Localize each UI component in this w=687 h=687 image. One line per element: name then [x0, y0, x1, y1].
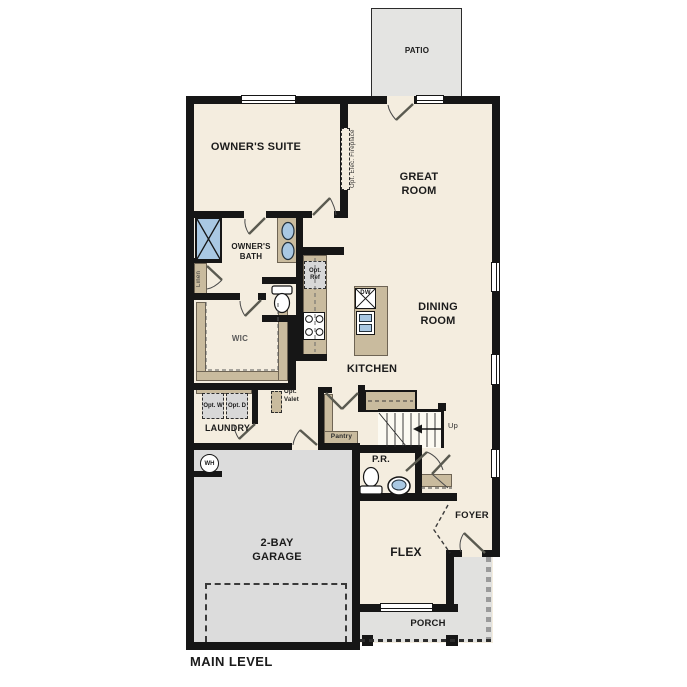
opt-washer: Opt. W — [202, 393, 224, 419]
room-label-garage: 2-BAY GARAGE — [240, 537, 314, 565]
wall-wic-right — [288, 322, 296, 390]
wall-flex-right — [446, 553, 454, 612]
wall-flex-top — [352, 493, 457, 501]
water-heater: WH — [200, 454, 219, 473]
wall-suite-bottom-3 — [334, 211, 348, 218]
window-flex — [380, 603, 433, 612]
wall-pantry-left — [318, 387, 324, 447]
wic-shelf-bottom — [196, 371, 288, 381]
wall-garage-bottom — [186, 642, 360, 650]
room-label-owners-suite: OWNER'S SUITE — [210, 141, 302, 155]
room-label-patio: PATIO — [391, 46, 443, 56]
bath-vanity — [277, 216, 298, 263]
wic-shelf-right — [278, 302, 288, 381]
wall-wic-top — [186, 293, 240, 300]
opt-dryer: Opt. D — [226, 393, 248, 419]
wall-kitchen-vertical — [296, 211, 303, 361]
window-great-room-top — [416, 95, 444, 104]
wall-garage-right — [352, 443, 360, 650]
opt-fireplace — [341, 128, 350, 190]
annotation-stairs-up: Up — [444, 421, 462, 430]
wall-laundry-top — [186, 383, 296, 390]
wall-counter-cap — [296, 354, 327, 361]
room-label-foyer: FOYER — [450, 510, 494, 522]
opt-refrigerator: Opt. Ref — [304, 261, 326, 289]
wall-wic-hinge-stub — [258, 293, 266, 300]
patio-door-opening — [387, 96, 414, 104]
island-sink-bowl-top — [359, 314, 372, 322]
water-heater-label: WH — [205, 461, 215, 467]
opt-washer-label: Opt. W — [203, 403, 222, 410]
stair-post — [438, 403, 446, 411]
wall-toilet-alcove-top — [262, 277, 303, 284]
porch-edge-right-dashed — [486, 557, 491, 643]
garage-door-dashed — [205, 583, 347, 642]
room-label-powder-room: P.R. — [366, 454, 396, 466]
wall-stairs-bottom — [352, 445, 422, 453]
stove — [303, 312, 325, 340]
porch-edge-bottom-dashed — [360, 639, 492, 642]
stairs-floor — [378, 412, 443, 448]
room-label-owners-bath: OWNER'S BATH — [222, 242, 280, 262]
annotation-fireplace: Opt. Elec. Fireplace — [350, 122, 356, 196]
room-label-porch: PORCH — [404, 618, 452, 630]
shower — [195, 217, 222, 261]
annotation-linen: Linen — [196, 265, 202, 293]
room-label-kitchen: KITCHEN — [342, 363, 402, 377]
annotation-opt-valet: Opt. Valet — [284, 389, 308, 404]
window-owners-suite — [241, 95, 296, 104]
dishwasher-label: DW — [355, 290, 376, 298]
room-label-great-room: GREAT ROOM — [392, 171, 446, 199]
floor-plan: Opt. Ref DW Opt. W Opt. D WH — [0, 0, 687, 687]
wall-foyer-bottom-right — [482, 550, 496, 557]
room-label-dining-room: DINING ROOM — [407, 301, 469, 329]
wall-exterior-left — [186, 96, 194, 650]
wall-garage-top-left — [186, 443, 292, 450]
wall-laundry-right — [252, 390, 258, 424]
window-great-room-right — [491, 262, 500, 292]
stair-rail-top — [378, 409, 443, 412]
room-label-pantry: Pantry — [326, 433, 357, 441]
wall-pantry-stub — [318, 387, 332, 393]
wic-shelf-left — [196, 302, 206, 381]
wall-landing-left — [358, 385, 365, 412]
wall-toilet-alcove-bottom — [262, 315, 303, 322]
window-dining-right — [491, 354, 500, 385]
plan-title: MAIN LEVEL — [190, 654, 320, 670]
island-sink-bowl-bottom — [359, 324, 372, 332]
wall-kitchen-horizontal — [296, 247, 344, 255]
valet-bench — [271, 391, 282, 413]
room-label-laundry: LAUNDRY — [200, 423, 255, 434]
window-foyer-right — [491, 449, 500, 478]
wall-exterior-right — [492, 96, 500, 557]
wall-suite-bottom-2 — [266, 211, 312, 218]
room-label-flex: FLEX — [383, 545, 429, 560]
opt-ref-label: Opt. Ref — [305, 268, 325, 281]
room-label-wic: WIC — [224, 334, 256, 344]
opt-dryer-label: Opt. D — [228, 403, 246, 410]
closet-shelf — [421, 474, 452, 487]
